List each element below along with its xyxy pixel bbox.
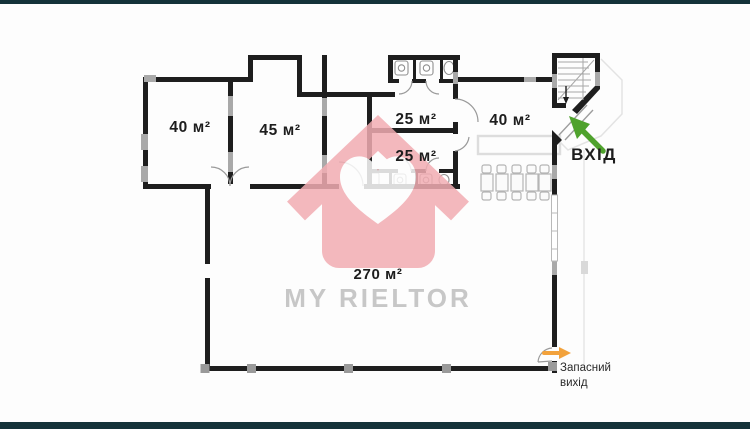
- room-label-45: 45 м²: [259, 122, 300, 140]
- floor-plan-drawing: [0, 0, 750, 429]
- entrance-label: ВХІД: [571, 145, 617, 165]
- emergency-exit-label-line2: вихід: [560, 376, 611, 391]
- room-label-40-right: 40 м²: [489, 112, 530, 130]
- furniture: [478, 136, 560, 200]
- room-label-270: 270 м²: [354, 266, 403, 283]
- sink-icon: [444, 62, 454, 75]
- toilet-icon: [420, 61, 433, 75]
- desk-cluster: [511, 165, 538, 200]
- desk-cluster: [539, 165, 551, 200]
- reception-desk: [478, 136, 560, 154]
- bottom-frame-bar: [0, 422, 750, 429]
- room-label-25-top: 25 м²: [395, 111, 436, 129]
- emergency-exit-label-line1: Запасний: [560, 361, 611, 376]
- room-label-40-left: 40 м²: [169, 119, 210, 137]
- floor-plan-page: 40 м² 45 м² 25 м² 25 м² 40 м² 270 м² ВХІ…: [0, 0, 750, 429]
- watermark-brand-text: MY RIELTOR: [284, 283, 471, 314]
- entrance-canopy-outline: [558, 59, 622, 365]
- glazed-wall: [552, 195, 558, 261]
- desk-cluster: [481, 165, 508, 200]
- room-label-25-bottom: 25 м²: [395, 148, 436, 166]
- emergency-exit-label: Запасний вихід: [560, 361, 611, 391]
- toilet-icon: [395, 61, 408, 75]
